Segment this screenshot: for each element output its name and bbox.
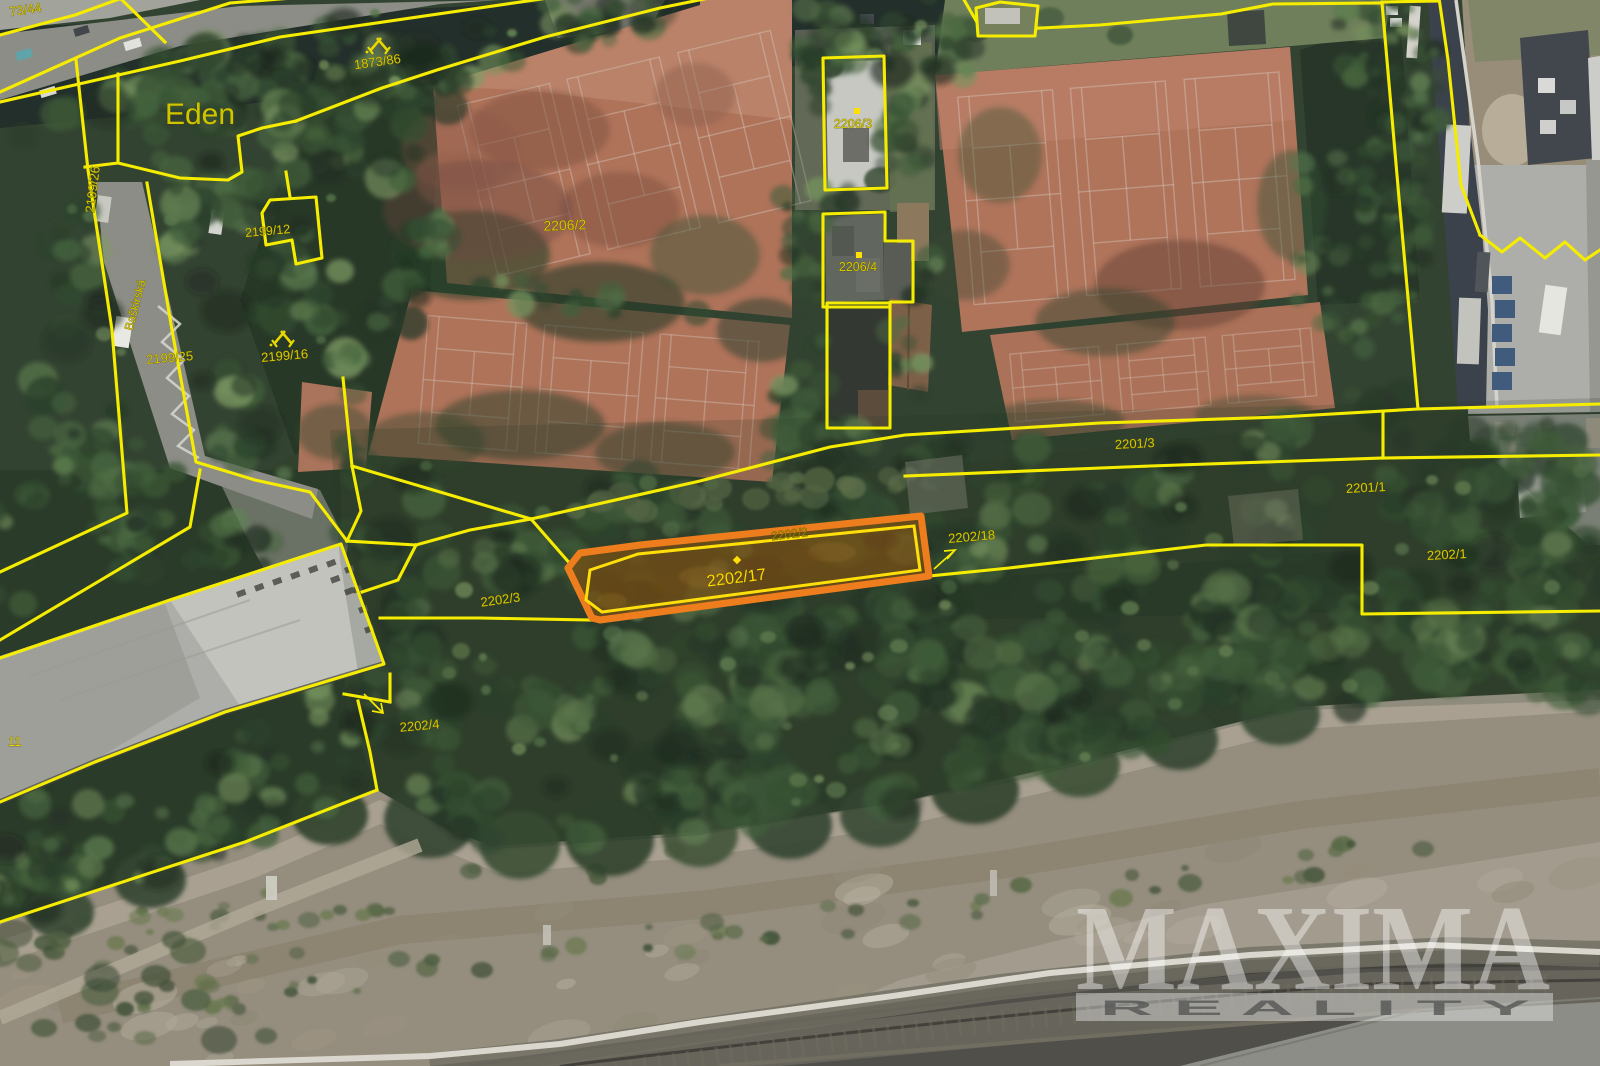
svg-text:Eden: Eden (165, 98, 235, 131)
svg-text:2201/1: 2201/1 (1346, 479, 1386, 496)
svg-text:11: 11 (8, 734, 22, 749)
svg-text:2202/1: 2202/1 (1427, 546, 1467, 563)
svg-text:2206/3: 2206/3 (834, 117, 872, 131)
svg-text:2201/3: 2201/3 (1115, 435, 1155, 452)
svg-text:2206/4: 2206/4 (839, 260, 877, 274)
svg-text:R E A L I T Y: R E A L I T Y (1100, 997, 1530, 1020)
svg-text:2206/2: 2206/2 (543, 216, 587, 233)
